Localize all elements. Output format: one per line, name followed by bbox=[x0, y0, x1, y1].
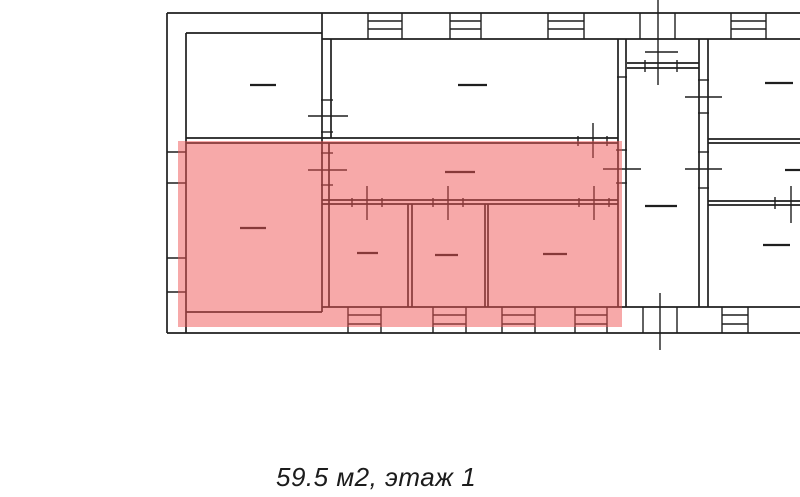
area-caption: 59.5 м2, этаж 1 bbox=[276, 463, 476, 492]
highlighted-area[interactable] bbox=[178, 141, 622, 327]
floor-plan-image: 59.5 м2, этаж 1 bbox=[0, 0, 800, 497]
floor-plan-svg bbox=[0, 0, 800, 497]
